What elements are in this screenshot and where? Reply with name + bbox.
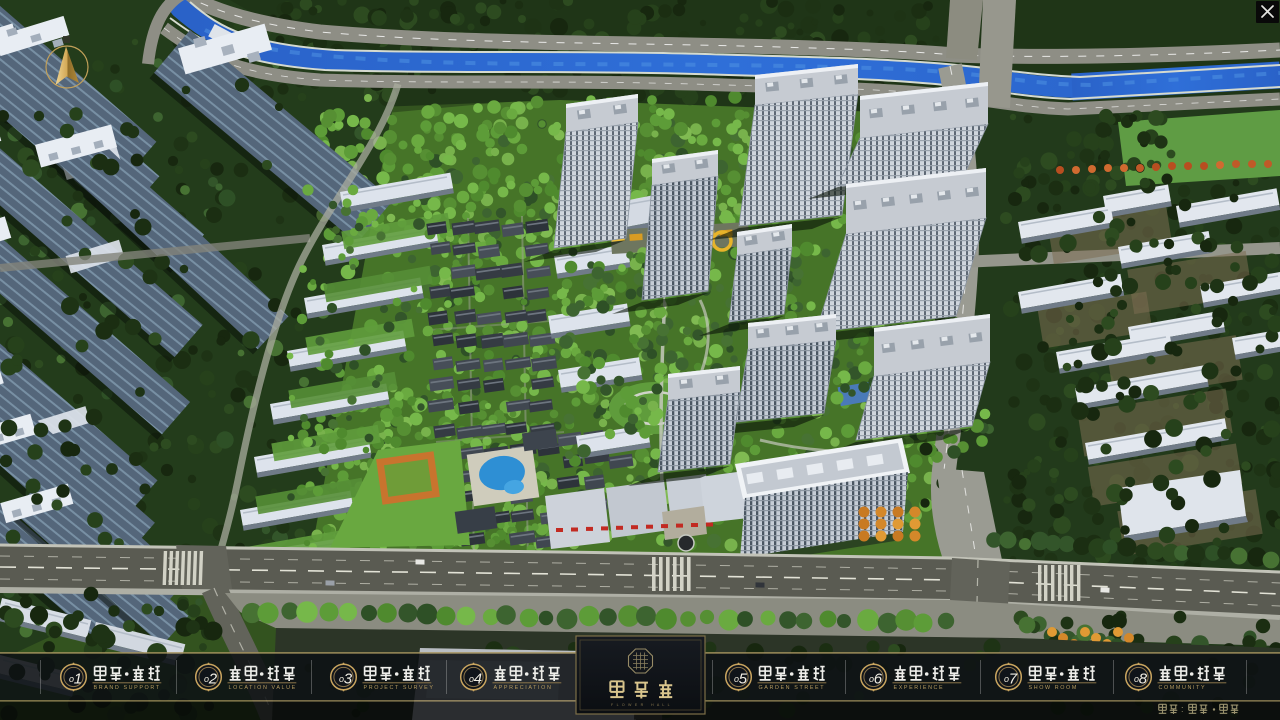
svg-text:4: 4 bbox=[474, 671, 482, 688]
svg-text:F L O W E R H A L L: F L O W E R H A L L bbox=[611, 703, 671, 707]
svg-text:3: 3 bbox=[344, 671, 353, 688]
svg-text:LOCATION VALUE: LOCATION VALUE bbox=[229, 685, 297, 691]
svg-text:COMMUNITY: COMMUNITY bbox=[1159, 685, 1207, 691]
svg-text:2: 2 bbox=[208, 671, 218, 688]
svg-text:8: 8 bbox=[1139, 671, 1148, 688]
svg-text:6: 6 bbox=[874, 671, 883, 688]
svg-text:EXPERIENCE: EXPERIENCE bbox=[894, 685, 945, 691]
svg-text:PROJECT SURVEY: PROJECT SURVEY bbox=[364, 685, 435, 691]
svg-text::: : bbox=[1181, 704, 1184, 714]
svg-text:GARDEN STREET: GARDEN STREET bbox=[759, 685, 826, 691]
svg-text:7: 7 bbox=[1009, 671, 1018, 688]
svg-text:5: 5 bbox=[739, 671, 748, 688]
svg-text:1: 1 bbox=[74, 671, 82, 688]
svg-text:BRAND SUPPORT: BRAND SUPPORT bbox=[94, 685, 161, 691]
svg-text:APPRECIATION: APPRECIATION bbox=[494, 685, 553, 691]
svg-text:SHOW ROOM: SHOW ROOM bbox=[1029, 685, 1078, 691]
